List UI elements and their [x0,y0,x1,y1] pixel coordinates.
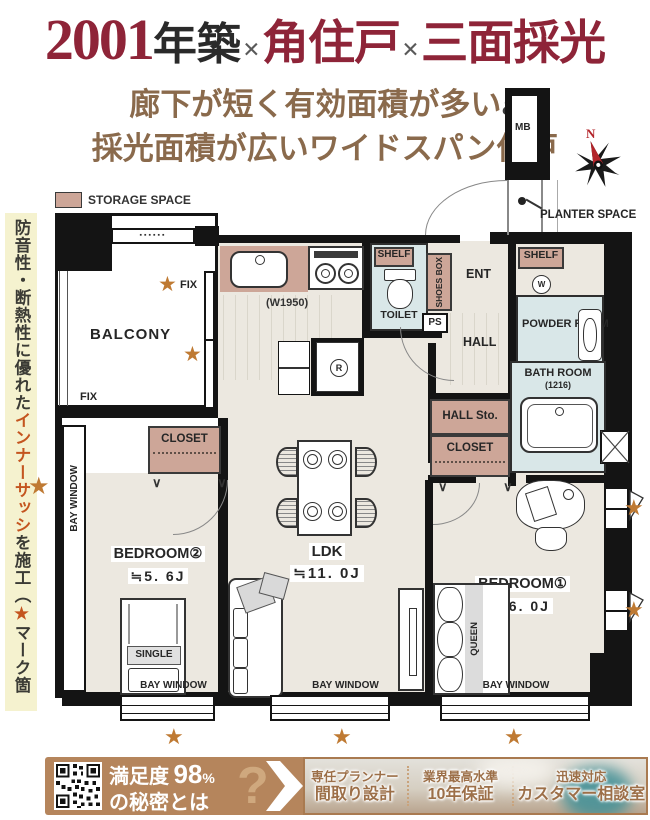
storage-legend-label: STORAGE SPACE [88,193,191,207]
feature-support-bottom: カスタマー相談室 [516,786,646,804]
wall-segment [55,408,62,640]
single-bed-label-band: SINGLE [127,646,181,665]
window-line [272,705,388,706]
duvet-fold [437,622,463,657]
feature-planner-top: 専任プランナー [305,768,405,786]
powder-room-label: POWDER ROOM [522,317,580,331]
queen-bed: QUEEN [433,583,510,695]
queen-label-band: QUEEN [465,585,483,693]
window-line [122,705,213,706]
fridge-r-symbol: R [330,359,348,377]
inner-sash-star-right: ★ [624,599,644,621]
desk [516,480,585,530]
basin-bowl [583,318,597,352]
toilet-bowl [387,279,413,309]
bay-window-label: BAY WINDOW [69,465,80,532]
toilet-label: TOILET [374,309,424,321]
bay-window-left: BAY WINDOW [62,425,86,692]
feature-planner-bottom: 間取り設計 [305,786,405,804]
bay-window-bottom-left [120,695,215,721]
planter-leader-line [526,199,542,209]
feature-planner: 専任プランナー 間取り設計 [305,768,405,804]
subtitle-line1: 廊下が短く有効面積が多い& [0,84,650,128]
inner-sash-star: ★ [332,726,352,748]
feature-warranty-bottom: 10年保証 [411,786,511,804]
washbasin [578,309,602,361]
vent-window [600,430,630,464]
qr-code [54,762,102,810]
promo-banner: 満足度 98% の秘密とは ? 専任プランナー 間取り設計 業界最高水準 10年… [45,757,648,815]
cabinet [278,341,310,395]
washer-symbol: W [532,275,551,294]
bath-room: BATH ROOM (1216) [510,361,606,473]
closet-hatch [153,452,216,454]
dining-chair [355,498,377,528]
satisfaction-text: 満足度 98% の秘密とは [109,762,215,816]
floor-plan: STORAGE SPACE ▪▪▪▪▪▪ [48,183,650,748]
feature-warranty-top: 業界最高水準 [411,768,511,786]
closet-label: CLOSET [150,428,219,450]
cabinet-shelf-line [279,367,309,369]
wall-segment [425,480,433,695]
mb-label: MB [515,122,531,133]
balcony-railing: ▪▪▪▪▪▪ [111,228,195,244]
shoes-box-label: SHOES BOX [435,257,444,308]
feature-support-top: 迅速対応 [516,768,646,786]
title-three-sides: 三面採光 [421,4,605,73]
toilet-shelf: SHELF [374,247,414,267]
hall-sto-label: HALL Sto. [432,401,508,431]
mb-box: MB [512,96,537,162]
window-line [442,713,588,714]
fix-window-left [59,271,68,406]
wall-segment [55,408,218,418]
bedroom2-size-label: ≒5. 6J [98,568,218,585]
stove-grill [314,251,358,258]
shelf-label: SHELF [376,249,412,260]
title-times-2: × [402,33,419,67]
kitchen-width-label: (W1950) [266,297,308,309]
satisfaction-line2: の秘密とは [109,791,215,816]
flyer-page: 2001 年築 × 角住戸 × 三面採光 廊下が短く有効面積が多い& 採光面積が… [0,0,650,820]
single-label: SINGLE [128,647,180,662]
planter-dot [518,197,526,205]
closet-hatch [435,461,505,463]
hall-floor-lines [450,313,502,385]
bed-line [128,604,130,644]
ldk-size-label: ≒11. 0J [277,564,377,582]
shelf-label: SHELF [520,249,562,261]
balcony: ▪▪▪▪▪▪ ★ FIX BALCONY ★ FIX [55,213,218,408]
entrance-door-arc [425,180,507,235]
inner-sash-star: ★ [158,274,177,295]
desk-lamp [563,489,574,500]
banner-features: 専任プランナー 間取り設計 業界最高水準 10年保証 迅速対応 カスタマー相談室 [303,757,648,815]
ent-label: ENT [466,267,491,281]
fix-label-top: FIX [180,279,197,291]
sofa-cushion [233,668,248,694]
sofa-cushion [233,638,248,668]
satisfaction-percent: % [202,770,214,786]
wall-segment [590,653,632,698]
window-line [122,713,213,714]
hall-storage: HALL Sto. [430,399,510,435]
bedroom2-label: BEDROOM② [98,546,218,562]
tv-board [398,588,424,691]
soundproof-note: 防音性・断熱性に優れたインナーサッシを施工（★マーク箇所） [5,213,37,711]
satisfaction-prefix: 満足度 [109,766,169,788]
wall-segment [190,235,460,243]
kitchen-sink [230,251,288,288]
bay-window-bottom-middle [270,695,390,721]
bay-window-label: BAY WINDOW [126,680,221,691]
title-built: 年築 [153,8,241,72]
entrance-door-leaf [507,180,509,235]
drain [555,407,564,416]
powder-room: POWDER ROOM [516,295,604,371]
dining-chair [276,447,298,477]
fix-label-bottom: FIX [80,391,97,403]
dining-chair [355,447,377,477]
powder-shelf: SHELF [518,247,564,269]
bay-window-label: BAY WINDOW [298,680,393,691]
feature-warranty: 業界最高水準 10年保証 [411,768,511,804]
desk-chair [535,527,567,551]
feature-support: 迅速対応 カスタマー相談室 [516,768,646,804]
duvet-fold [437,657,463,692]
shoes-box: SHOES BOX [426,253,452,311]
qr-code-icon [54,762,102,810]
inner-sash-star: ★ [164,726,184,748]
bed-line [176,604,178,644]
dining-table [297,440,352,536]
bathtub [520,397,598,453]
title-times-1: × [243,33,260,67]
balcony-window [204,271,215,409]
burner [338,263,359,284]
window-line [442,705,588,706]
refrigerator: R [316,342,359,392]
place-setting [328,450,347,469]
inner-sash-star-left: ★ [28,475,50,499]
balcony-label: BALCONY [90,326,171,343]
stove [308,246,364,290]
title-corner-unit: 角住戸 [262,4,400,73]
notebook [525,486,557,522]
dotted-separator [407,766,409,806]
hall-label: HALL [463,335,496,349]
closet-label: CLOSET [432,437,508,459]
queen-label: QUEEN [469,622,480,656]
duvet-fold [437,587,463,622]
faucet [255,255,265,265]
bath-size-label: (1216) [512,380,604,390]
bay-window-label: BAY WINDOW [466,680,566,691]
place-setting [303,450,322,469]
storage-legend-swatch [55,192,82,208]
subtitle-line2: 採光面積が広いワイドスパン住戸 [0,128,650,169]
toilet-room: SHELF TOILET [370,243,428,331]
satisfaction-number: 98 [173,759,202,789]
banner-left: 満足度 98% の秘密とは ? [45,757,303,815]
title-year: 2001 [45,6,153,73]
page-title: 2001 年築 × 角住戸 × 三面採光 [0,4,650,73]
burner [315,263,336,284]
balcony-corner-block [57,215,112,271]
wall-segment [195,226,219,246]
bay-window-bottom-right [440,695,590,721]
inner-sash-star-right: ★ [624,497,644,519]
closet-left: CLOSET [148,426,221,474]
inner-sash-star: ★ [183,344,202,365]
dining-chair [276,498,298,528]
place-setting [328,502,347,521]
inner-sash-star: ★ [504,726,524,748]
closet-right: CLOSET [430,435,510,477]
bath-room-label: BATH ROOM [512,367,604,379]
ldk-label: LDK [287,543,367,560]
tv [409,608,417,676]
chevron-icon [264,759,304,813]
window-line [272,713,388,714]
place-setting [303,502,322,521]
note-star: ★ [12,604,31,624]
window-mullion [206,339,213,341]
subtitle: 廊下が短く有効面積が多い& 採光面積が広いワイドスパン住戸 [0,84,650,169]
planter-space-label: PLANTER SPACE [540,209,636,221]
